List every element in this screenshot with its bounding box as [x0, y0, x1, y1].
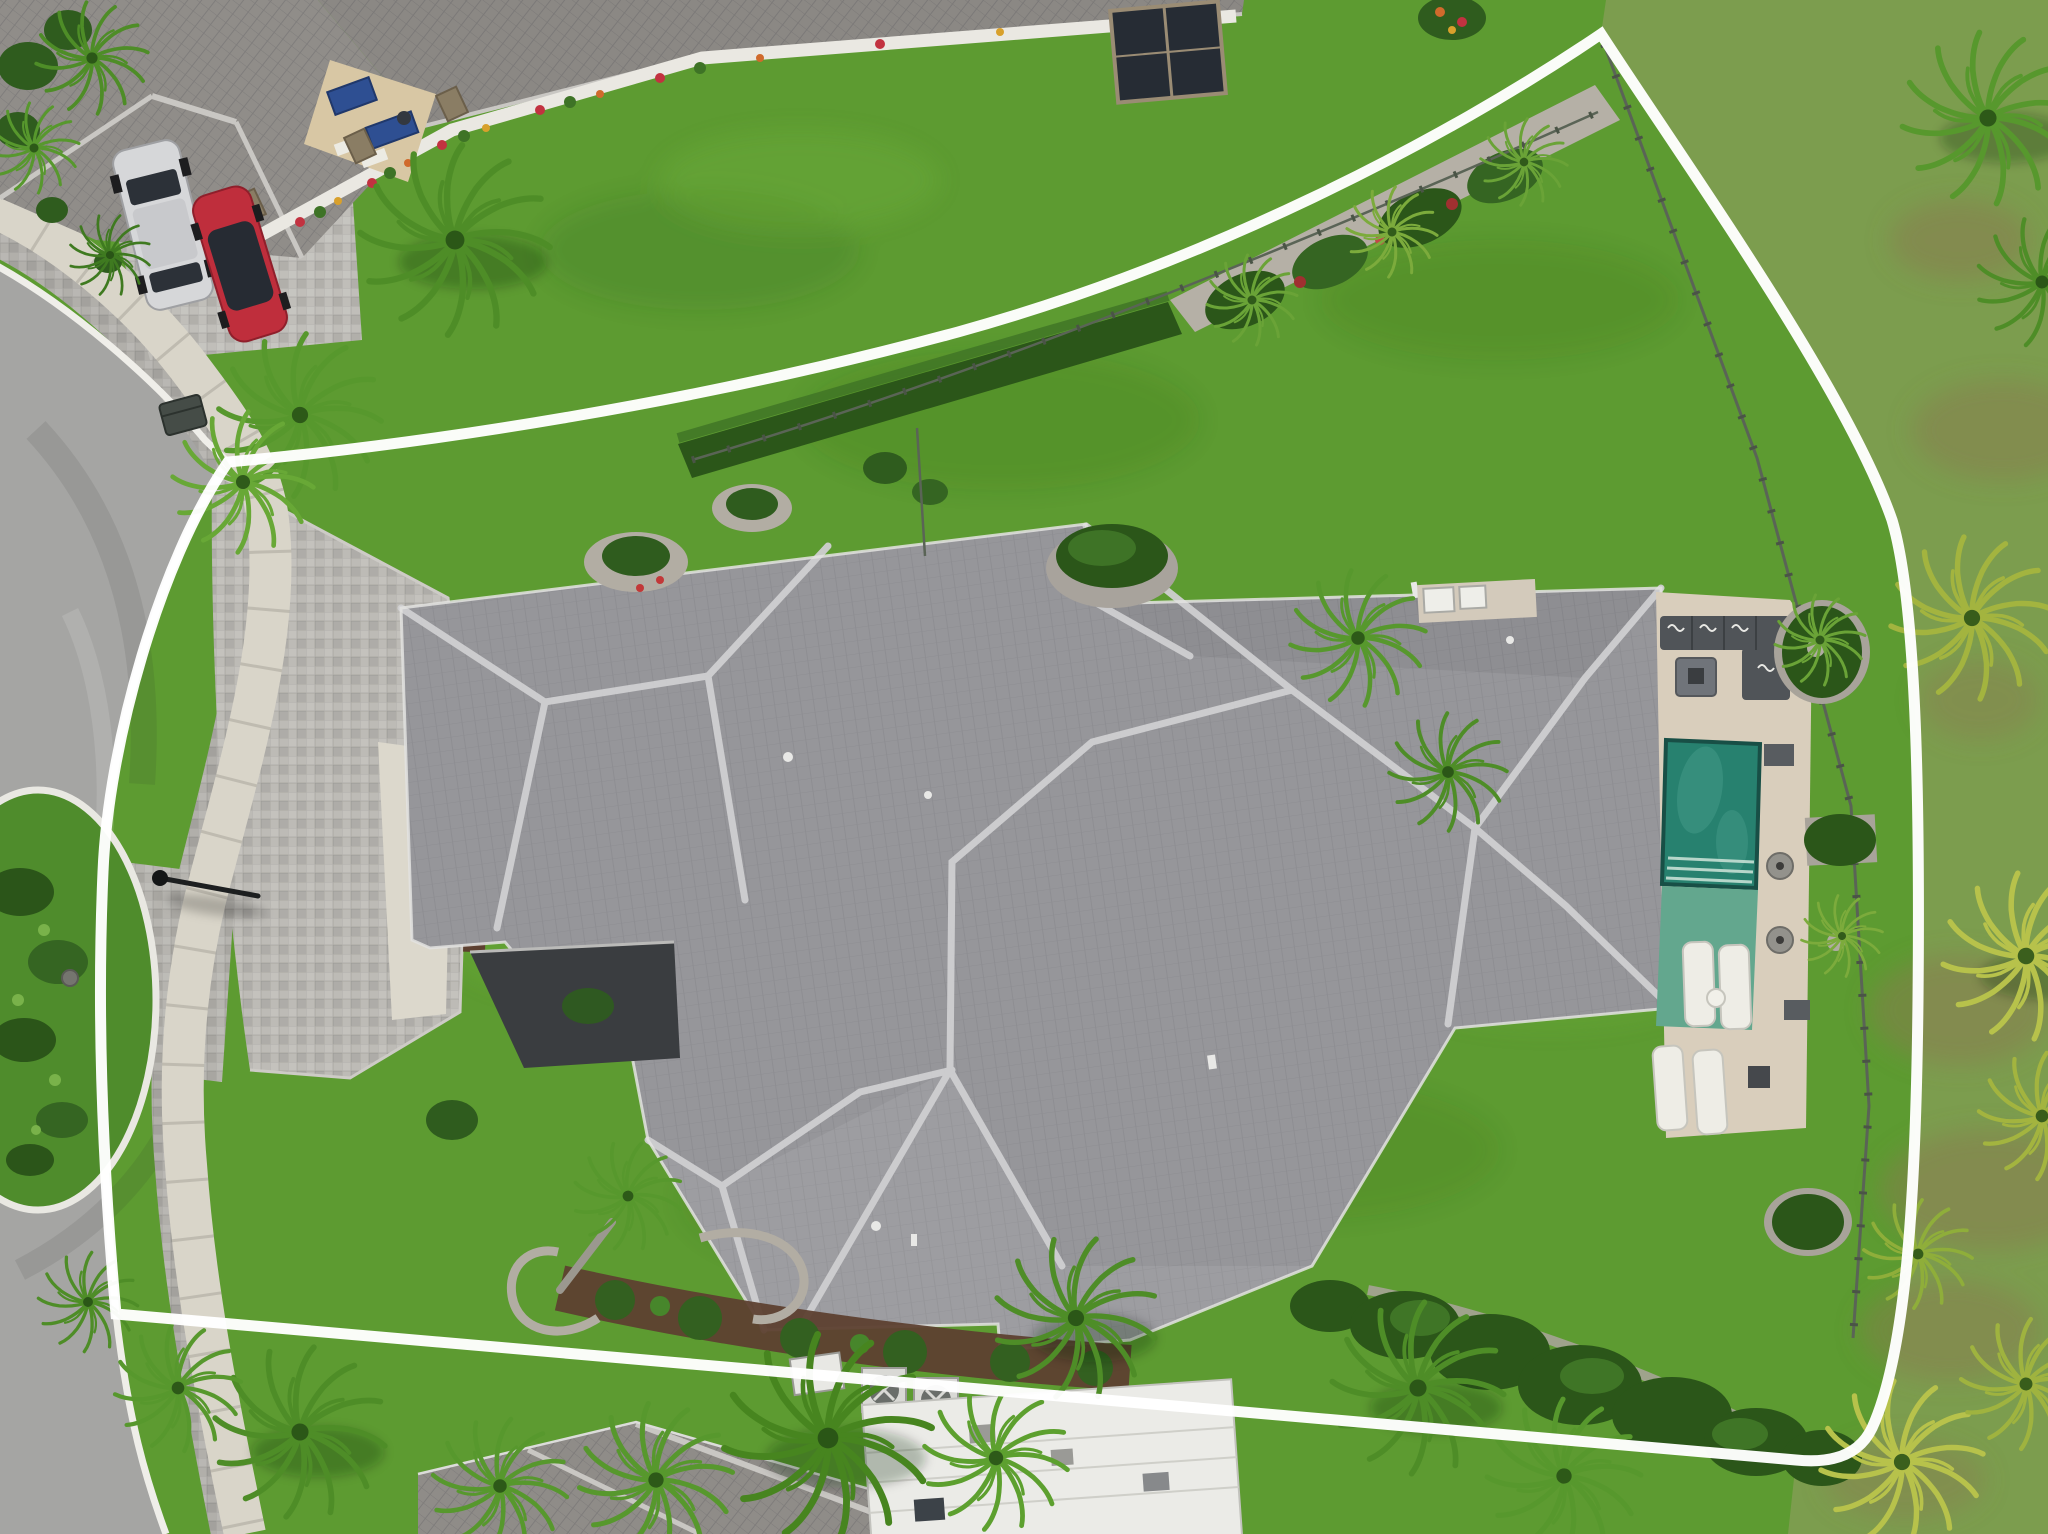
- manhole: [62, 970, 78, 986]
- pool-equipment-pad: [1417, 579, 1537, 623]
- entry-shrub: [426, 1100, 478, 1140]
- in-pool-lounger: [1683, 942, 1716, 1027]
- deck-grill: [1748, 1066, 1770, 1088]
- pool-side-table: [1707, 989, 1725, 1007]
- in-pool-lounger: [1719, 945, 1752, 1030]
- aerial-photo: [0, 0, 2048, 1534]
- fire-pit: [1676, 658, 1716, 696]
- neighbor-window: [1110, 1, 1226, 102]
